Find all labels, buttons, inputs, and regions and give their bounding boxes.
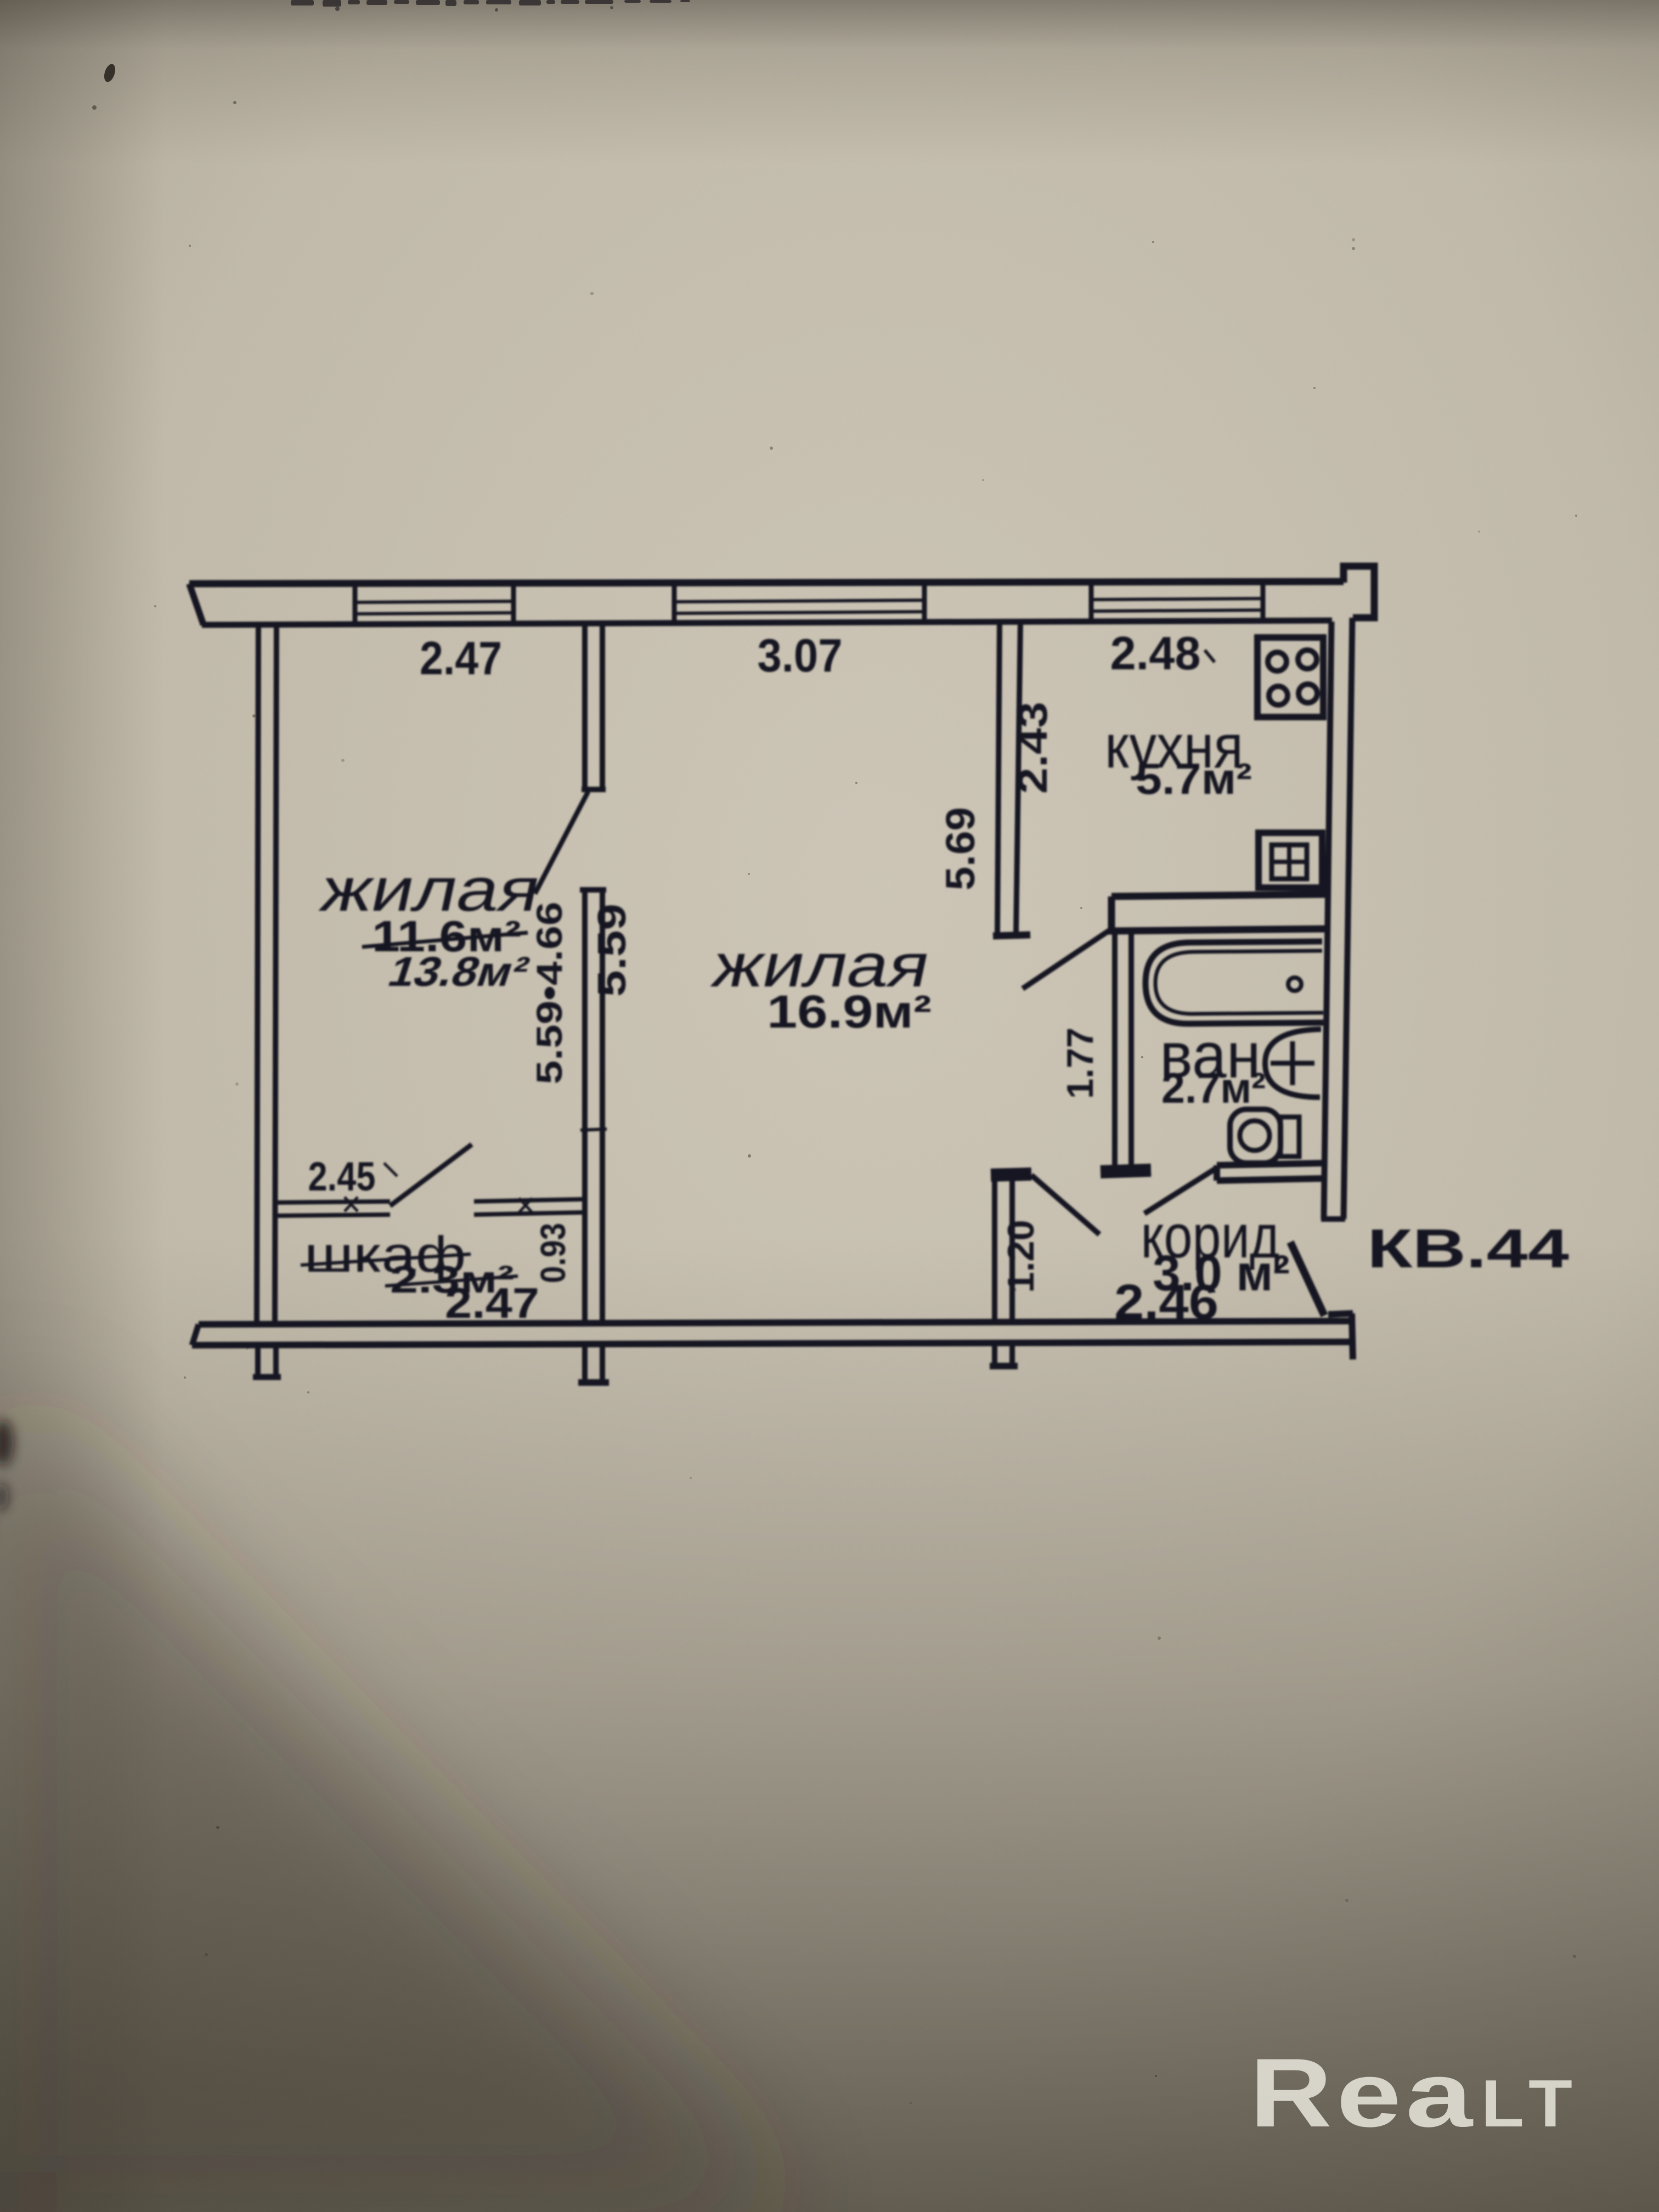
- svg-text:1.77: 1.77: [1059, 1028, 1101, 1099]
- svg-text:0.93: 0.93: [533, 1223, 573, 1283]
- svg-text:2.43: 2.43: [1010, 702, 1056, 794]
- svg-text:T: T: [1528, 2066, 1572, 2141]
- svg-text:5.7м²: 5.7м²: [1136, 754, 1252, 803]
- svg-text:L: L: [1481, 2066, 1524, 2141]
- svg-text:R: R: [1250, 2038, 1332, 2147]
- svg-text:5.69: 5.69: [938, 807, 983, 890]
- svg-text:2.47: 2.47: [420, 633, 502, 685]
- svg-text:2.45: 2.45: [308, 1154, 376, 1199]
- svg-text:2.48: 2.48: [1110, 628, 1201, 680]
- svg-text:e: e: [1336, 2043, 1401, 2146]
- svg-text:1.20: 1.20: [1000, 1220, 1042, 1293]
- svg-text:a: a: [1406, 2043, 1474, 2146]
- svg-text:2.47: 2.47: [445, 1279, 539, 1327]
- svg-text:5.59•4.66: 5.59•4.66: [529, 902, 569, 1085]
- svg-text:КВ.44: КВ.44: [1367, 1218, 1570, 1279]
- svg-text:5.59: 5.59: [590, 904, 634, 997]
- svg-text:16.9м²: 16.9м²: [767, 986, 932, 1037]
- svg-text:2.7м²: 2.7м²: [1161, 1064, 1266, 1112]
- svg-text:2.46: 2.46: [1114, 1275, 1218, 1330]
- svg-text:3.07: 3.07: [758, 630, 843, 682]
- svg-text:13.8м²: 13.8м²: [383, 948, 535, 995]
